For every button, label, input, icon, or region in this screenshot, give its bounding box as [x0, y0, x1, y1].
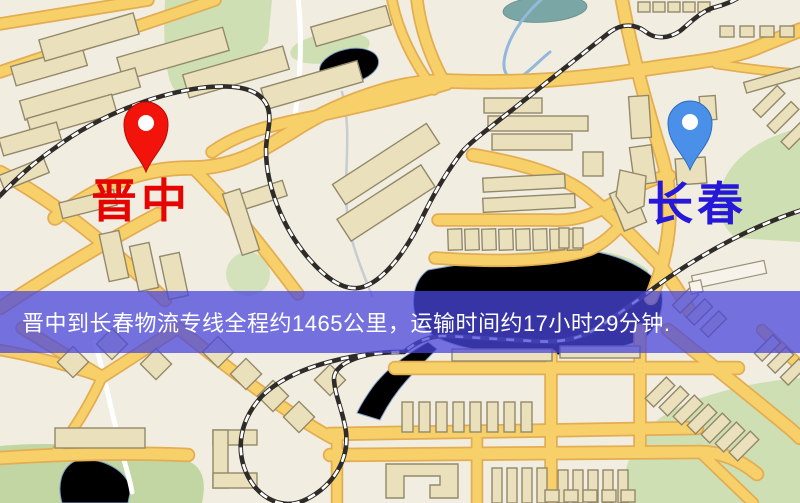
origin-pin-dot: [138, 115, 154, 131]
route-info-banner: 晋中到长春物流专线全程约1465公里，运输时间约17小时29分钟.: [0, 291, 800, 353]
origin-label: 晋中: [91, 175, 191, 227]
destination-label: 长春: [647, 178, 747, 230]
route-info-text: 晋中到长春物流专线全程约1465公里，运输时间约17小时29分钟.: [22, 306, 671, 338]
map-canvas: 晋中 长春: [0, 0, 800, 503]
destination-pin-dot: [682, 114, 698, 130]
